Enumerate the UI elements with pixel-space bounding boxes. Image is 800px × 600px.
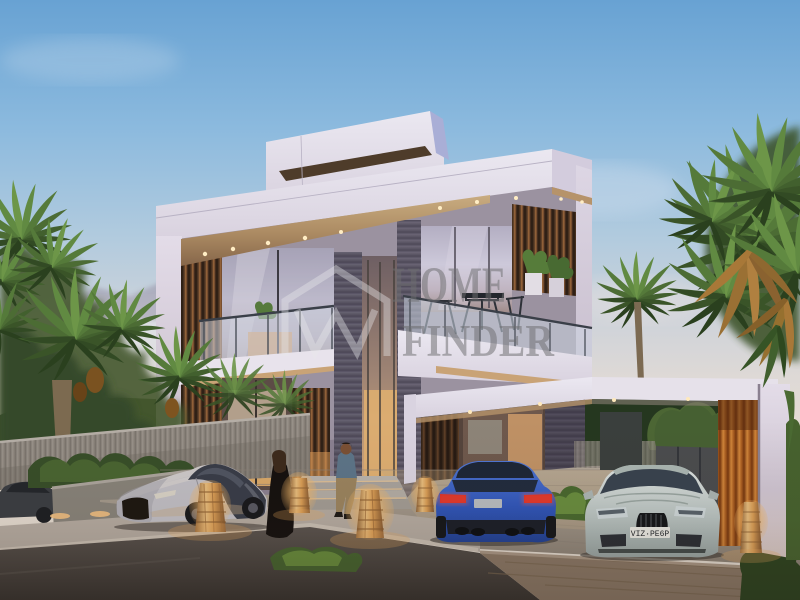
svg-text:FINDER: FINDER: [402, 316, 554, 366]
svg-text:HOME: HOME: [392, 258, 506, 314]
